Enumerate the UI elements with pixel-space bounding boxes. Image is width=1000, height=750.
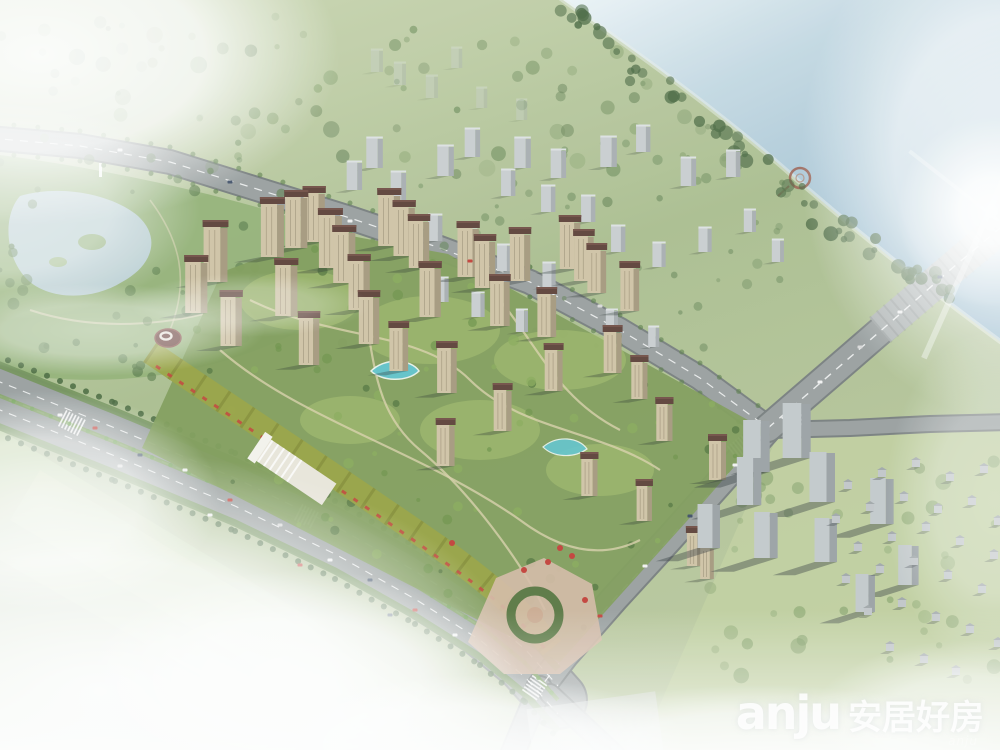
- watermark-small-script: anju: [948, 734, 978, 748]
- atmosphere: [0, 0, 1000, 750]
- aerial-masterplan-render: anju 安居好房 anju: [0, 0, 1000, 750]
- watermark-cjk: 安居好房: [848, 701, 984, 735]
- watermark-latin: anju: [736, 690, 840, 736]
- scene-canvas: [0, 0, 1000, 750]
- brand-watermark: anju 安居好房: [736, 690, 984, 736]
